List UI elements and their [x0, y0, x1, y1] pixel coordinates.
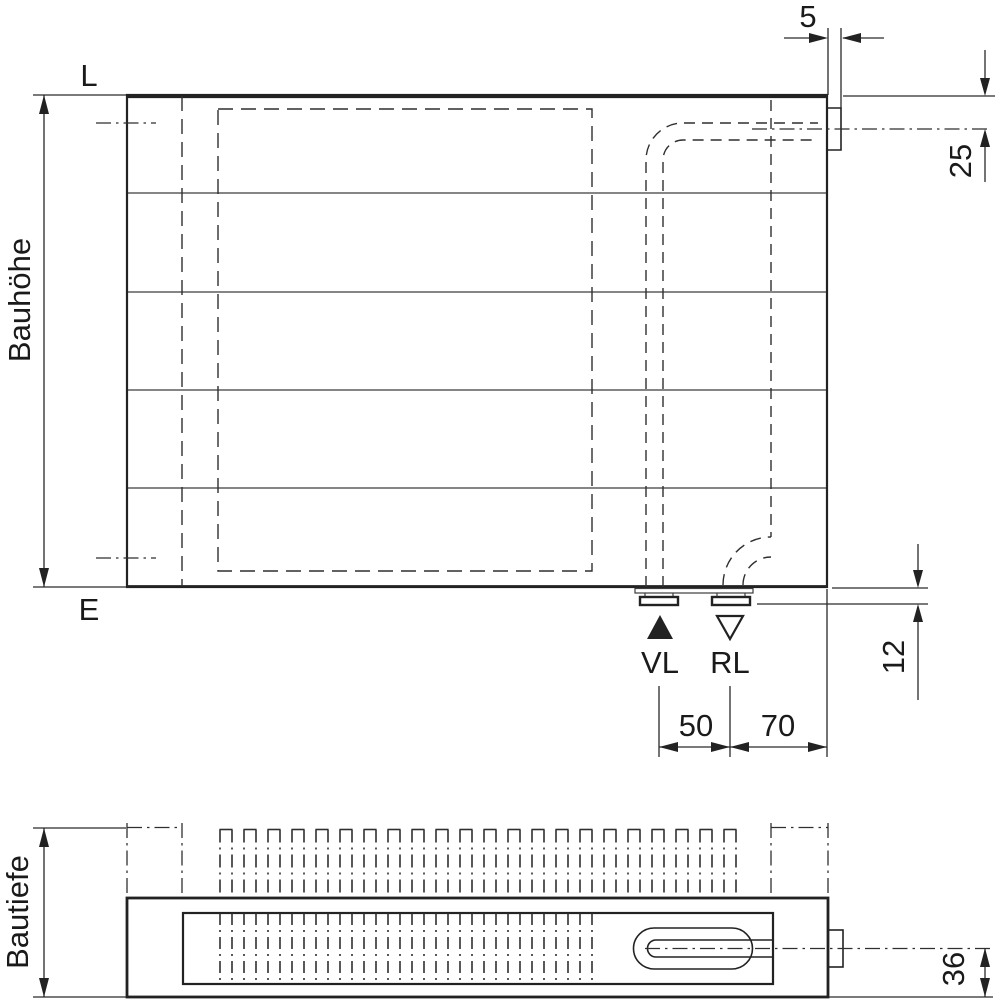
- return-flow-icon: [717, 616, 743, 639]
- arrow-right-icon: [711, 742, 730, 752]
- radiator-body-outline: [127, 95, 827, 587]
- arrow-down-icon: [980, 978, 990, 997]
- depth-dim-label: Bautiefe: [0, 855, 35, 969]
- front-view-dimensions: Bauhöhe L E 5 25 12: [2, 0, 995, 757]
- arrow-left-icon: [842, 33, 861, 43]
- convector-fins-inner: [219, 914, 593, 984]
- arrow-down-icon: [913, 570, 923, 588]
- arrow-down-icon: [39, 568, 49, 587]
- connection-drop-value: 12: [876, 640, 911, 674]
- tab-width-value: 5: [799, 0, 816, 34]
- return-edge-spacing-value: 70: [761, 708, 795, 743]
- arrow-up-icon: [39, 95, 49, 114]
- arrow-right-icon: [808, 742, 827, 752]
- pipe-axis-value: 36: [936, 952, 971, 986]
- arrow-down-icon: [39, 978, 49, 997]
- radiator-technical-drawing: VL RL Bauhöhe L E 5 25: [0, 0, 1000, 1000]
- bauhoehe-dimension: Bauhöhe: [2, 95, 126, 587]
- right-end-section-marks: [771, 823, 828, 895]
- arrow-left-icon: [730, 742, 749, 752]
- tab-center-dimension: 25: [843, 50, 995, 182]
- convector-fins-rear: [219, 828, 738, 898]
- supply-label: VL: [641, 645, 679, 680]
- arrow-right-icon: [809, 33, 828, 43]
- height-dim-label: Bauhöhe: [2, 238, 37, 362]
- tab-width-dimension: 5: [784, 0, 884, 108]
- arrow-up-icon: [980, 948, 990, 967]
- waterway-hidden-outline: [218, 109, 592, 571]
- corner-label-top: L: [80, 58, 97, 93]
- left-end-section-marks: [127, 823, 182, 896]
- vl-connection-nipple: [640, 597, 678, 605]
- arrow-left-icon: [659, 742, 678, 752]
- panel-grooves: [128, 193, 826, 488]
- plan-view: [127, 823, 993, 997]
- bautiefe-dimension: Bautiefe: [0, 828, 126, 997]
- front-view: VL RL: [96, 95, 992, 680]
- supply-return-spacing-value: 50: [679, 708, 713, 743]
- drawing-canvas: VL RL Bauhöhe L E 5 25: [0, 0, 1000, 1000]
- arrow-up-icon: [39, 828, 49, 847]
- return-label: RL: [710, 645, 750, 680]
- bottom-connection-block: [635, 589, 753, 606]
- supply-flow-icon: [647, 615, 673, 639]
- arrow-up-icon: [980, 129, 990, 147]
- connection-drop-dimension: 12: [757, 544, 928, 700]
- corner-label-bottom: E: [79, 592, 100, 627]
- rl-connection-nipple: [712, 597, 750, 605]
- tab-center-value: 25: [943, 144, 978, 178]
- arrow-up-icon: [913, 604, 923, 622]
- arrow-down-icon: [980, 78, 990, 96]
- return-pipe-hidden: [723, 100, 771, 585]
- pipe-axis-dimension: 36: [829, 948, 993, 997]
